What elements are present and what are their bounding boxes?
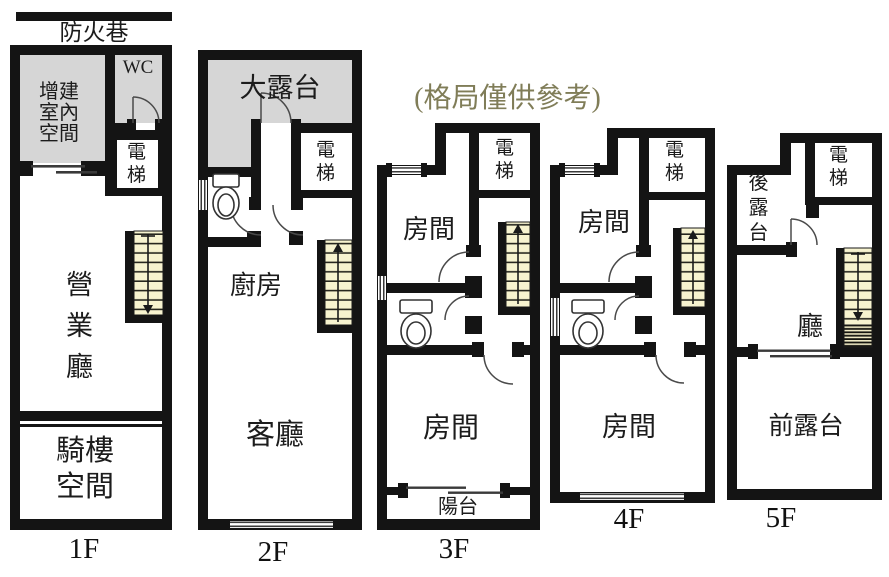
floor-label-1f: 1F bbox=[58, 533, 110, 565]
room-label-room-lower-3f: 房間 bbox=[421, 413, 481, 444]
floorplan-canvas: 防火巷 (格局僅供參考) 增建室內空間 WC 電梯 營業廳 騎樓空間 1F 大露… bbox=[0, 0, 889, 577]
room-label-business-hall: 營業廳 bbox=[65, 265, 94, 388]
stairs-icon bbox=[317, 240, 352, 333]
room-label-room-lower-4f: 房間 bbox=[600, 412, 658, 442]
layout-reference-note: (格局僅供參考) bbox=[400, 83, 615, 114]
divider-window-icon bbox=[748, 344, 840, 359]
room-label-front-terrace: 前露台 bbox=[767, 413, 845, 441]
room-label-hall: 廳 bbox=[795, 312, 825, 341]
room-label-room-upper-4f: 房間 bbox=[575, 208, 633, 237]
fire-lane-label: 防火巷 bbox=[54, 20, 134, 46]
toilet-icon bbox=[213, 174, 239, 219]
stairs-icon bbox=[836, 248, 872, 347]
room-door-icon bbox=[644, 342, 696, 383]
window-icon bbox=[199, 180, 333, 528]
toilet-icon bbox=[572, 300, 604, 348]
room-label-rear-terrace: 後露台 bbox=[747, 171, 770, 246]
floor-label-4f: 4F bbox=[603, 503, 655, 535]
room-label-elevator-3f: 電梯 bbox=[494, 137, 515, 183]
floor-plan-3f bbox=[377, 123, 540, 530]
room-label-annex: 增建室內空間 bbox=[36, 82, 82, 145]
room-label-room-upper-3f: 房間 bbox=[400, 215, 458, 244]
room-label-elevator-2f: 電梯 bbox=[315, 139, 336, 185]
toilet-icon bbox=[400, 300, 432, 348]
floor-label-3f: 3F bbox=[428, 533, 480, 565]
floor-label-5f: 5F bbox=[755, 502, 807, 534]
room-label-terrace: 大露台 bbox=[237, 73, 323, 103]
room-label-living-room: 客廳 bbox=[242, 419, 308, 451]
stairs-icon bbox=[125, 231, 163, 323]
floor-plan-4f bbox=[550, 128, 715, 503]
room-label-elevator-4f: 電梯 bbox=[664, 139, 685, 185]
sliding-door-icon bbox=[20, 161, 97, 176]
room-door-icon bbox=[472, 342, 524, 384]
room-label-kitchen: 廚房 bbox=[227, 271, 285, 300]
floor-label-2f: 2F bbox=[247, 536, 299, 568]
terrace-door-icon bbox=[786, 205, 819, 257]
room-label-elevator-5f: 電梯 bbox=[828, 144, 849, 190]
walls-4f bbox=[550, 128, 715, 503]
room-label-arcade: 騎樓空間 bbox=[50, 433, 120, 505]
room-label-elevator-1f: 電梯 bbox=[126, 141, 147, 187]
room-label-balcony: 陽台 bbox=[434, 496, 482, 518]
room-label-wc: WC bbox=[121, 57, 155, 78]
